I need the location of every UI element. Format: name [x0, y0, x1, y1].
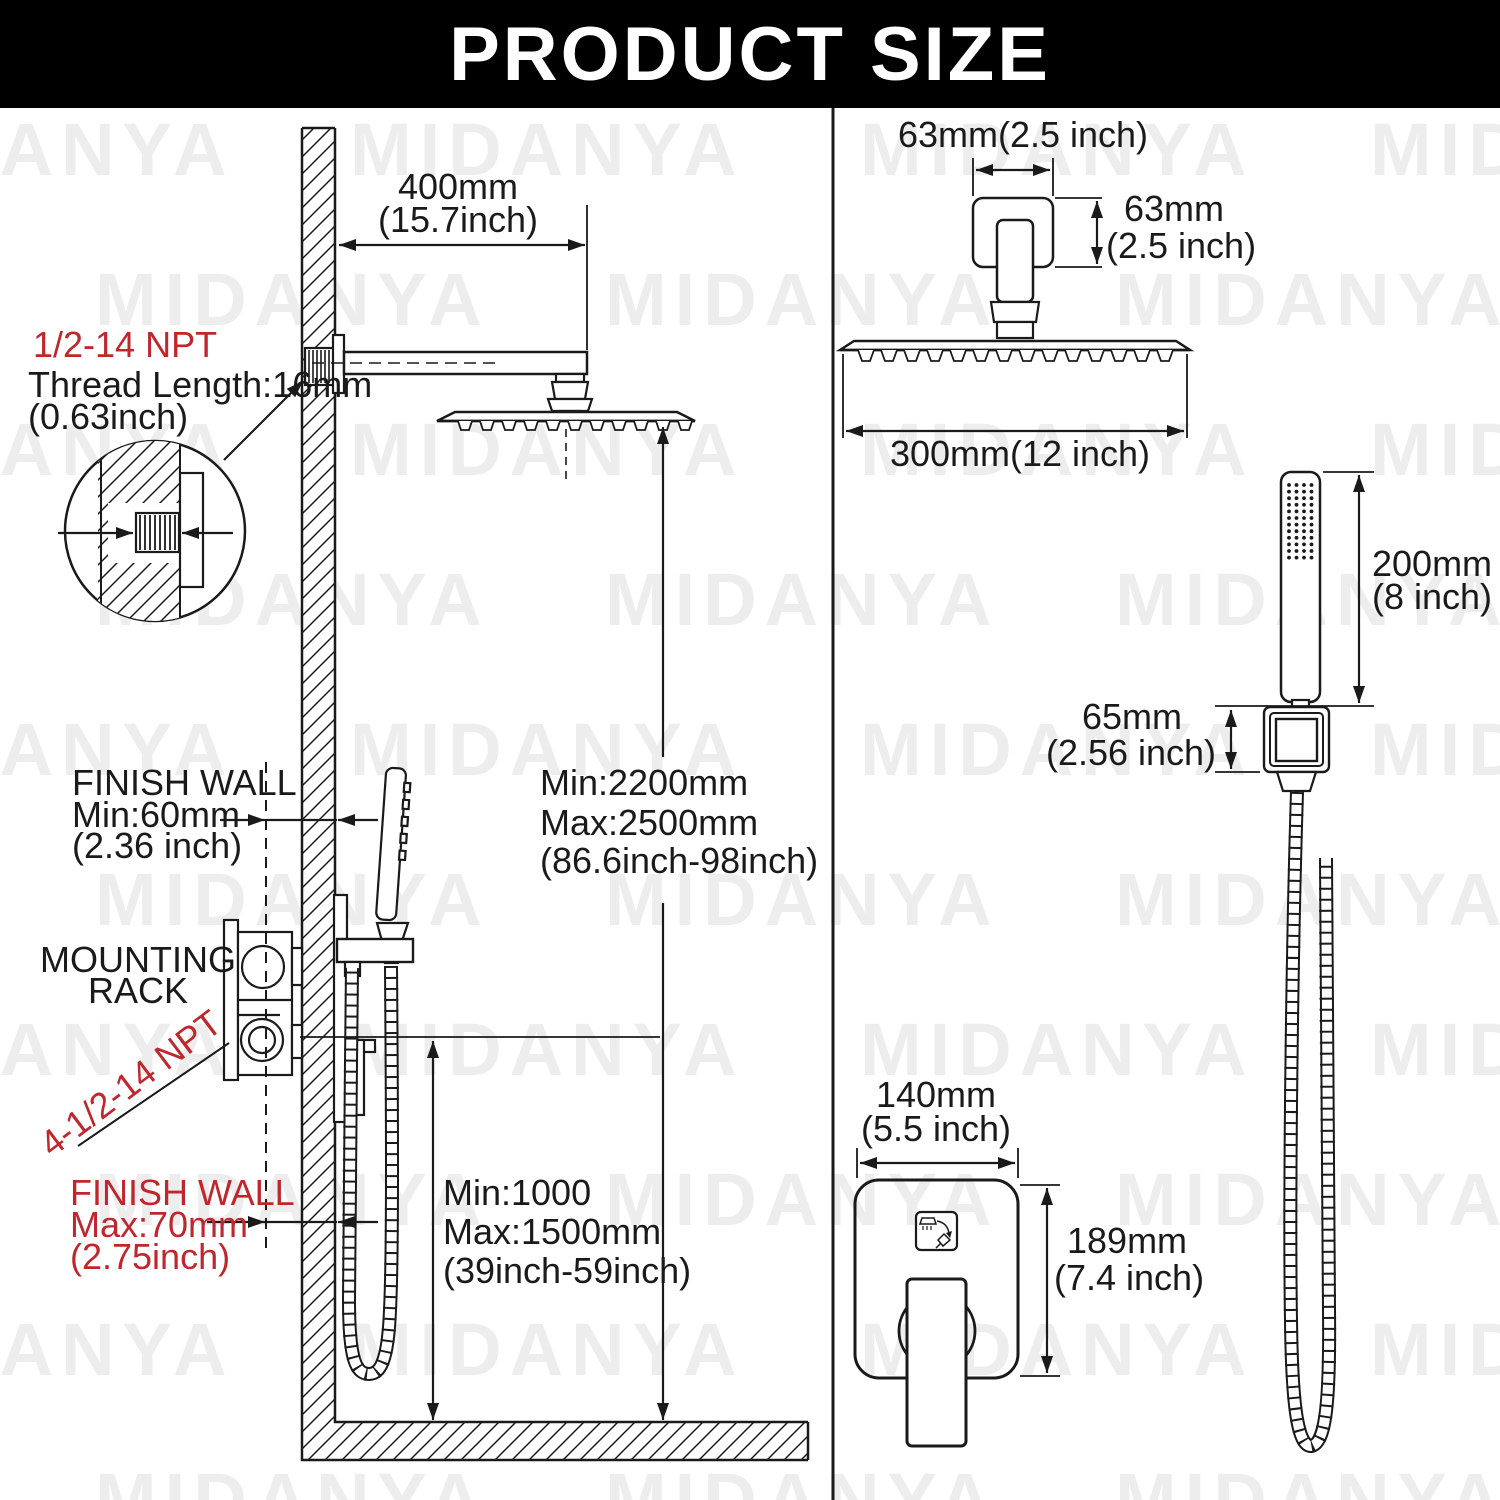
head-height-line1: Min:2200mm [540, 762, 748, 803]
trim-lever-handle [907, 1279, 966, 1446]
watermark-text: MIDANYA [1115, 258, 1500, 341]
head-plate-width-value: 63mm(2.5 inch) [898, 114, 1148, 155]
npt-top-label: 1/2-14 NPT [33, 324, 217, 365]
watermark-text: MIDANYA [95, 858, 490, 941]
finish-wall-max-line3: (2.75inch) [70, 1236, 230, 1277]
head-plate-profile [840, 341, 1190, 350]
trim-width-inch: (5.5 inch) [861, 1108, 1011, 1149]
head-plate-height-value: 63mm [1124, 188, 1224, 229]
head-width-value: 300mm(12 inch) [890, 433, 1150, 474]
dim-head-plate-height: 63mm (2.5 inch) [1055, 188, 1256, 267]
detail-flange [180, 473, 203, 587]
trim-height-inch: (7.4 inch) [1054, 1257, 1204, 1298]
diverter-icon [916, 1212, 957, 1250]
watermark-text: MIDANYA [350, 1008, 745, 1091]
head-height-line3: (86.6inch-98inch) [540, 840, 818, 881]
dim-trim-width: 140mm (5.5 inch) [857, 1074, 1018, 1178]
mounting-rack-line2: RACK [88, 970, 188, 1011]
watermark-text: MIDANYA [1370, 708, 1500, 791]
watermark-text: MIDANYA [605, 258, 1000, 341]
handheld-wand [1281, 472, 1320, 702]
finish-wall-min-line3: (2.36 inch) [72, 825, 242, 866]
head-arm-tube [997, 220, 1033, 302]
nozzle-row [858, 350, 1173, 361]
valve-port-top [242, 946, 284, 988]
head-height-line2: Max:2500mm [540, 802, 758, 843]
valve-height-line3: (39inch-59inch) [443, 1250, 691, 1291]
watermark-text: MIDANYA [1370, 108, 1500, 191]
holder-size-value: 65mm [1082, 696, 1182, 737]
watermark-text: MIDANYA [0, 1308, 235, 1391]
hose-nut [1277, 772, 1316, 791]
valve-height-line2: Max:1500mm [443, 1211, 661, 1252]
title-banner: PRODUCT SIZE [0, 0, 1500, 108]
watermark-text: MIDANYA [95, 1458, 490, 1500]
watermark-text: MIDANYA [605, 558, 1000, 641]
watermark-text: MIDANYA [1370, 408, 1500, 491]
valve-height-line1: Min:1000 [443, 1172, 591, 1213]
product-size-diagram-page: MIDANYAMIDANYAMIDANYAMIDANYAMIDANYAMIDAN… [0, 0, 1500, 1500]
holder-size-inch: (2.56 inch) [1046, 732, 1216, 773]
trim-height-value: 189mm [1067, 1220, 1187, 1261]
watermark-text: MIDANYA [1370, 1308, 1500, 1391]
watermark-text: MIDANYA [1115, 858, 1500, 941]
arm-length-inch: (15.7inch) [378, 199, 538, 240]
wand-length-inch: (8 inch) [1372, 576, 1492, 617]
holder-bar [337, 939, 413, 962]
thread-length-line2: (0.63inch) [28, 396, 188, 437]
watermark-text: MIDANYA [0, 108, 235, 191]
product-size-diagram: MIDANYAMIDANYAMIDANYAMIDANYAMIDANYAMIDAN… [0, 0, 1500, 1500]
ball-joint [548, 374, 592, 417]
watermark-text: MIDANYA [350, 1308, 745, 1391]
page-title: PRODUCT SIZE [449, 12, 1051, 97]
watermark-text: MIDANYA [605, 1458, 1000, 1500]
watermark-text: MIDANYA [1370, 1008, 1500, 1091]
head-plate-height-inch: (2.5 inch) [1106, 225, 1256, 266]
watermark-text: MIDANYA [1115, 1458, 1500, 1500]
